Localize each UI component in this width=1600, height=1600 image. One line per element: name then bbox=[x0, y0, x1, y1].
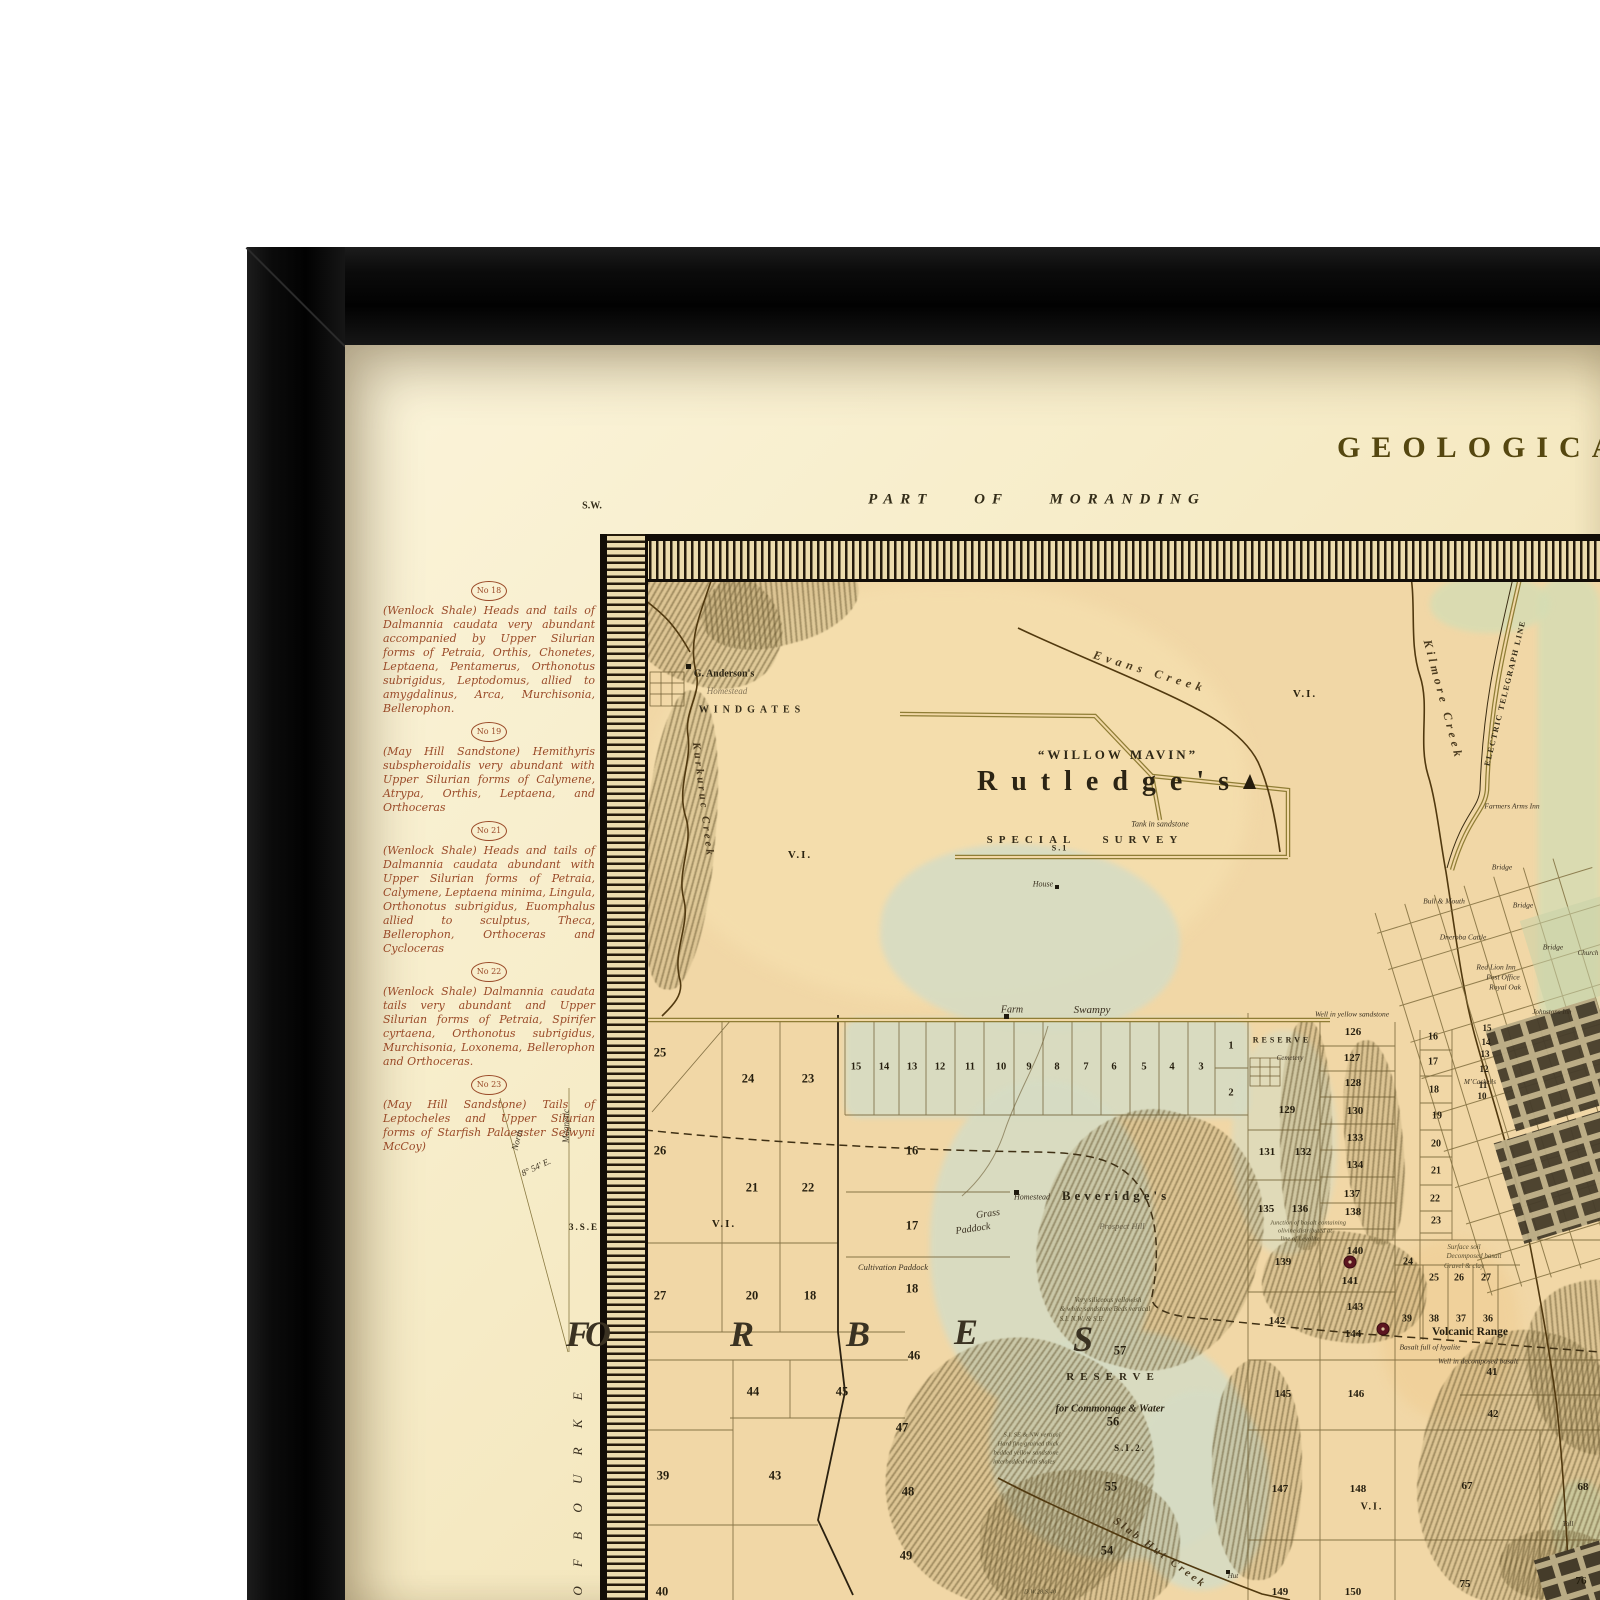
parcel-number: 25 bbox=[1429, 1273, 1439, 1284]
roads bbox=[648, 578, 1520, 1020]
parcel-number: 2 bbox=[1228, 1088, 1233, 1099]
map-label: S.I. N.W. & S.E. bbox=[1060, 1315, 1105, 1323]
corner-label-sw: S.W. bbox=[582, 501, 602, 512]
parcel-number: 16 bbox=[1428, 1032, 1438, 1043]
fossil-note: No 22(Wenlock Shale) Dalmannia caudata t… bbox=[383, 962, 595, 1069]
town-blocks bbox=[1485, 997, 1600, 1131]
map-label: Dneroba Cattle bbox=[1440, 933, 1487, 942]
cemetery-grid bbox=[1250, 1058, 1280, 1086]
parcel-number: 10 bbox=[1478, 1091, 1487, 1101]
neatline-border-left bbox=[600, 534, 648, 1600]
parcel-number: 18 bbox=[906, 1282, 919, 1297]
fossil-note-text: (May Hill Sandstone) Hemithyris subspher… bbox=[383, 745, 595, 814]
map-label: line of Leyolite bbox=[1281, 1236, 1320, 1243]
parcel-number: 27 bbox=[1481, 1273, 1491, 1284]
map-label: House bbox=[1033, 880, 1053, 889]
map-label: Bridge bbox=[1513, 901, 1533, 910]
parcel-number: 4 bbox=[1169, 1062, 1174, 1073]
map-label: Magnetic bbox=[561, 1109, 571, 1143]
map-label: Well in yellow sandstone bbox=[1315, 1010, 1389, 1019]
map-label: SPECIAL SURVEY bbox=[987, 834, 1184, 846]
parcel-number: 20 bbox=[1431, 1139, 1441, 1150]
map-label: V.I. bbox=[712, 1218, 736, 1230]
map-label: Prospect Hill bbox=[1099, 1221, 1144, 1231]
map-label: RESERVE bbox=[1253, 1036, 1312, 1045]
parcel-number: 27 bbox=[654, 1289, 667, 1304]
parcel-number: 134 bbox=[1347, 1159, 1364, 1171]
parcel-number: 41 bbox=[1487, 1366, 1498, 1378]
survey-boundary bbox=[818, 1015, 853, 1595]
parcel-number: 6 bbox=[1111, 1062, 1116, 1073]
map-label: Church bbox=[1578, 949, 1599, 957]
fossil-note-number: No 18 bbox=[471, 581, 507, 601]
parcel-number: 143 bbox=[1347, 1301, 1364, 1313]
parcel-number: 37 bbox=[1456, 1314, 1466, 1325]
parcel-number: 44 bbox=[747, 1385, 760, 1400]
map-label: “WILLOW MAVIN” bbox=[1038, 747, 1198, 763]
map-label: S bbox=[1073, 1318, 1093, 1360]
map-label: Hard fine grained thick bbox=[998, 1441, 1059, 1448]
parcel-number: 22 bbox=[1430, 1194, 1440, 1205]
parcel-number: 43 bbox=[769, 1469, 782, 1484]
map-label: V.I. bbox=[1361, 1502, 1384, 1513]
map-label: Volcanic Range bbox=[1432, 1326, 1508, 1338]
parcel-number: 132 bbox=[1295, 1146, 1312, 1158]
map-label: Surface soil bbox=[1447, 1243, 1480, 1251]
parcel-number: 144 bbox=[1345, 1328, 1362, 1340]
parcel-number: 21 bbox=[1431, 1166, 1441, 1177]
parcel-number: 55 bbox=[1105, 1480, 1118, 1495]
map-label: Homestead bbox=[1014, 1193, 1050, 1202]
map-label: 3.S.E bbox=[569, 1222, 599, 1232]
map-label: G. Anderson's bbox=[694, 669, 755, 680]
village-grid bbox=[650, 672, 684, 706]
map-label: O F B O U R K E bbox=[570, 1384, 586, 1595]
parcel-number: 150 bbox=[1345, 1586, 1362, 1598]
town-blocks bbox=[1494, 1101, 1600, 1244]
parcel-number: 140 bbox=[1347, 1245, 1364, 1257]
map-label: for Commonage & Water bbox=[1056, 1404, 1165, 1415]
map-label: Swampy bbox=[1074, 1004, 1111, 1016]
parcel-number: 17 bbox=[906, 1219, 919, 1234]
homestead-symbols bbox=[686, 664, 1230, 1574]
parcel-number: 22 bbox=[802, 1181, 815, 1196]
map-label: R bbox=[730, 1313, 754, 1355]
parcel-number: 11 bbox=[1479, 1080, 1488, 1090]
parcel-number: 76 bbox=[1576, 1575, 1587, 1587]
parcel-number: 14 bbox=[879, 1062, 890, 1073]
parcel-number: 129 bbox=[1279, 1104, 1296, 1116]
fossil-note-number: No 21 bbox=[471, 821, 507, 841]
map-label: Very siliceous yellowish bbox=[1075, 1296, 1142, 1304]
parcel-number: 23 bbox=[1431, 1216, 1441, 1227]
map-label: Homestead bbox=[707, 686, 748, 696]
fossil-note-text: (Wenlock Shale) Dalmannia caudata tails … bbox=[383, 985, 595, 1068]
parcel-number: 11 bbox=[965, 1062, 975, 1073]
map-label: olivine distributed at bbox=[1278, 1228, 1332, 1235]
parcel-number: 39 bbox=[657, 1469, 670, 1484]
parcel-number: 40 bbox=[656, 1585, 669, 1600]
parcel-number: 46 bbox=[908, 1349, 921, 1364]
map-label: WINDGATES bbox=[699, 705, 806, 716]
parcel-number: 149 bbox=[1272, 1586, 1289, 1598]
swamp-creek bbox=[962, 1026, 1048, 1196]
map-label: O bbox=[585, 1313, 611, 1355]
map-label: Beveridge's bbox=[1062, 1188, 1170, 1204]
parcel-number: 131 bbox=[1259, 1146, 1276, 1158]
parcel-number: 17 bbox=[1428, 1057, 1438, 1068]
parcel-number: 136 bbox=[1292, 1203, 1309, 1215]
map-label: Farmers Arms Inn bbox=[1484, 802, 1539, 811]
parcel-number: 23 bbox=[802, 1072, 815, 1087]
district-label: PART OF MORANDING bbox=[868, 492, 1206, 509]
map-label: Well in decomposed basalt bbox=[1438, 1357, 1518, 1366]
parcel-number: 68 bbox=[1578, 1481, 1589, 1493]
parcel-number: 14 bbox=[1482, 1037, 1491, 1047]
map-label: RESERVE bbox=[1066, 1371, 1160, 1383]
map-label: Basalt full of hyalite bbox=[1399, 1343, 1460, 1352]
map-label: Junction of basalt containing bbox=[1270, 1220, 1346, 1227]
parcel-number: 13 bbox=[1481, 1049, 1490, 1059]
parcel-number: 42 bbox=[1488, 1408, 1499, 1420]
parcel-number: 75 bbox=[1460, 1578, 1471, 1590]
map-label: Red Lion Inn bbox=[1476, 963, 1515, 972]
parcel-number: 9 bbox=[1026, 1062, 1031, 1073]
parcel-number: 126 bbox=[1345, 1026, 1362, 1038]
parcel-number: 26 bbox=[654, 1144, 667, 1159]
parcel-number: 142 bbox=[1269, 1315, 1286, 1327]
parcel-number: 146 bbox=[1348, 1388, 1365, 1400]
parcel-number: 47 bbox=[896, 1421, 909, 1436]
parcel-number: 49 bbox=[900, 1549, 913, 1564]
parcel-number: 15 bbox=[1483, 1023, 1492, 1033]
parcel-number: 127 bbox=[1344, 1052, 1361, 1064]
parcel-number: 135 bbox=[1258, 1203, 1275, 1215]
trig-symbol bbox=[1243, 774, 1256, 789]
parcel-number: 45 bbox=[836, 1385, 849, 1400]
parcel-number: 57 bbox=[1114, 1344, 1127, 1359]
map-label: Decomposed basalt bbox=[1446, 1252, 1501, 1260]
fossil-note: No 19(May Hill Sandstone) Hemithyris sub… bbox=[383, 722, 595, 815]
parcel-number: 36 bbox=[1483, 1314, 1493, 1325]
parcel-number: 21 bbox=[746, 1181, 759, 1196]
fossil-note-text: (Wenlock Shale) Heads and tails of Dalma… bbox=[383, 844, 595, 955]
map-label: Bull & Mouth bbox=[1423, 897, 1465, 906]
map-label: Gravel & clay bbox=[1444, 1262, 1484, 1270]
fossil-note-text: (Wenlock Shale) Heads and tails of Dalma… bbox=[383, 604, 595, 715]
map-label: Cemetery bbox=[1277, 1054, 1304, 1062]
parcel-number: 145 bbox=[1275, 1388, 1292, 1400]
parcel-number: 12 bbox=[935, 1062, 946, 1073]
parcel-number: 48 bbox=[902, 1485, 915, 1500]
parcel-number: 141 bbox=[1342, 1275, 1359, 1287]
parcel-number: 139 bbox=[1275, 1256, 1292, 1268]
map-label: Bridge bbox=[1492, 863, 1512, 872]
parcel-number: 38 bbox=[1429, 1314, 1439, 1325]
fossil-note: No 18(Wenlock Shale) Heads and tails of … bbox=[383, 581, 595, 716]
fossil-note: No 21(Wenlock Shale) Heads and tails of … bbox=[383, 821, 595, 956]
parcel-number: 39 bbox=[1402, 1314, 1412, 1325]
parcel-number: 56 bbox=[1107, 1415, 1120, 1430]
map-label: Bridge bbox=[1543, 943, 1563, 952]
parcel-number: 137 bbox=[1344, 1188, 1361, 1200]
map-label: Johnstons Inn bbox=[1532, 1008, 1571, 1016]
framed-map-photo: GEOLOGICAL PART OF MORANDING S.W. No 18(… bbox=[0, 0, 1600, 1600]
parcel-number: 19 bbox=[1432, 1111, 1442, 1122]
parcel-number: 24 bbox=[742, 1072, 755, 1087]
map-label: D.W.28.S.40 bbox=[1024, 1589, 1056, 1596]
fossil-note-number: No 22 bbox=[471, 962, 507, 982]
parcel-number: 16 bbox=[906, 1144, 919, 1159]
parcel-number: 128 bbox=[1345, 1077, 1362, 1089]
parcel-number: 8 bbox=[1054, 1062, 1059, 1073]
map-label: Hut bbox=[1228, 1572, 1239, 1580]
map-label: V.I. bbox=[788, 849, 812, 861]
map-label: E bbox=[954, 1311, 978, 1353]
map-linework bbox=[0, 0, 1600, 1600]
parcel-number: 25 bbox=[654, 1046, 667, 1061]
parcel-number: 18 bbox=[804, 1289, 817, 1304]
parcel-number: 148 bbox=[1350, 1483, 1367, 1495]
fossil-note-number: No 23 bbox=[471, 1075, 507, 1095]
parcel-number: 24 bbox=[1403, 1257, 1413, 1268]
parcel-number: 3 bbox=[1198, 1062, 1203, 1073]
map-label: interbedded with shales bbox=[993, 1459, 1055, 1466]
map-label: Rutledge's bbox=[977, 766, 1243, 798]
fossil-note-number: No 19 bbox=[471, 722, 507, 742]
parcel-number: 54 bbox=[1101, 1544, 1114, 1559]
parcel-number: 13 bbox=[907, 1062, 918, 1073]
margin-fossil-notes: No 18(Wenlock Shale) Heads and tails of … bbox=[383, 578, 595, 1160]
map-label: Royal Oak bbox=[1489, 983, 1521, 992]
parcel-number: 15 bbox=[851, 1062, 862, 1073]
parcel-number: 130 bbox=[1347, 1105, 1364, 1117]
parcel-number: 1 bbox=[1228, 1041, 1233, 1052]
parcel-number: 133 bbox=[1347, 1132, 1364, 1144]
parcel-number: 12 bbox=[1480, 1064, 1489, 1074]
map-label: Toll bbox=[1563, 1520, 1574, 1528]
map-title: GEOLOGICAL bbox=[1337, 431, 1600, 465]
volcanic-crater-markers bbox=[1344, 1256, 1389, 1335]
map-label: Farm bbox=[1001, 1005, 1023, 1016]
parcel-number: 147 bbox=[1272, 1483, 1289, 1495]
parcel-number: 67 bbox=[1462, 1480, 1473, 1492]
map-label: S.I. SE & NW vertical bbox=[1003, 1432, 1060, 1439]
map-label: V.I. bbox=[1293, 688, 1317, 700]
map-label: S.I.2. bbox=[1114, 1443, 1146, 1453]
parcel-number: 26 bbox=[1454, 1273, 1464, 1284]
parcel-number: 10 bbox=[996, 1062, 1007, 1073]
parcel-number: 7 bbox=[1083, 1062, 1088, 1073]
map-label: & white sandstone Beds vertical bbox=[1060, 1305, 1151, 1313]
creeks bbox=[645, 560, 1570, 1600]
map-label: B bbox=[846, 1313, 870, 1355]
parcel-number: 138 bbox=[1345, 1206, 1362, 1218]
parcel-number: 5 bbox=[1141, 1062, 1146, 1073]
parcel-number: 20 bbox=[746, 1289, 759, 1304]
neatline-border-top bbox=[600, 534, 1600, 582]
map-label: bedded yellow sandstone bbox=[994, 1450, 1059, 1457]
map-label: Cultivation Paddock bbox=[858, 1262, 928, 1272]
parcel-number: 18 bbox=[1429, 1085, 1439, 1096]
map-label: Post Office bbox=[1486, 973, 1520, 982]
map-label: Tank in sandstone bbox=[1131, 820, 1189, 829]
